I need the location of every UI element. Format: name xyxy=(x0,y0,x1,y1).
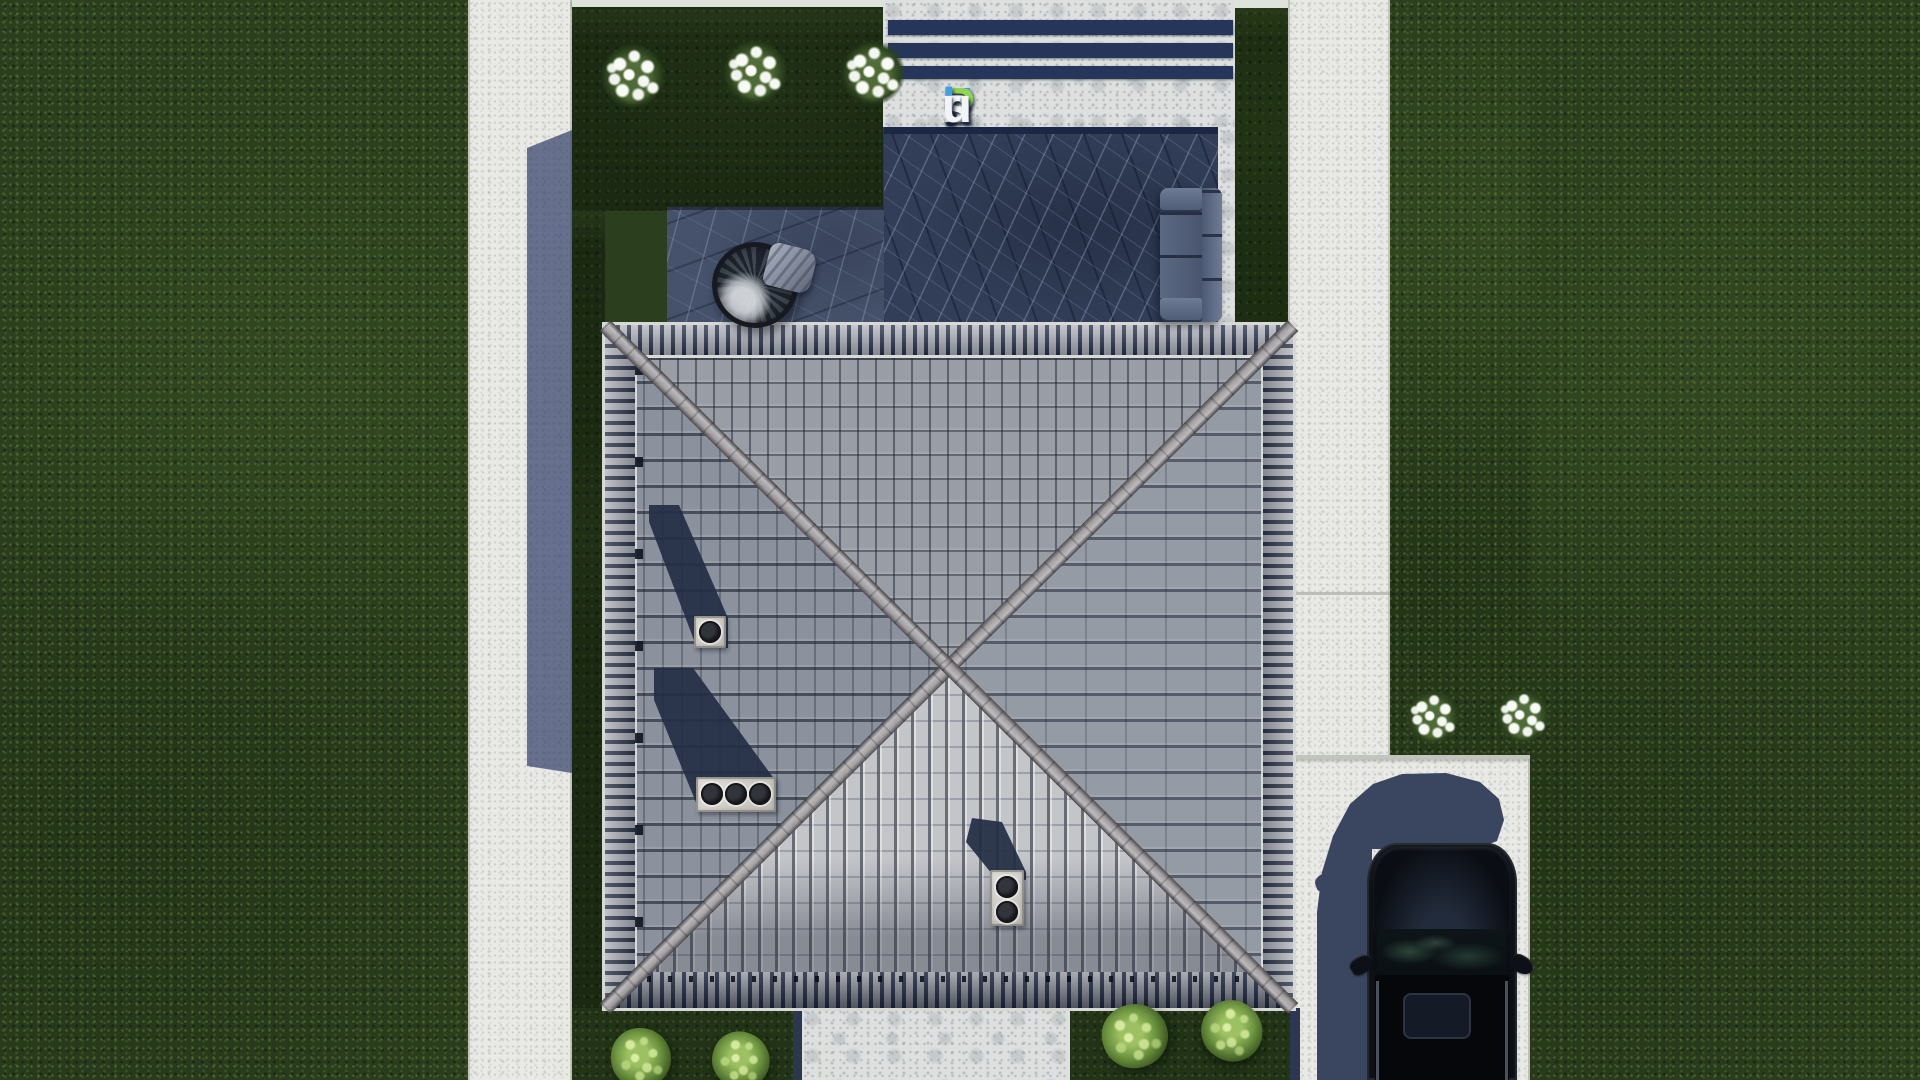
chimney-pot xyxy=(749,783,771,805)
sofa-armrest-bottom xyxy=(1160,298,1202,322)
car-hood xyxy=(1373,847,1511,935)
roof-eave-east xyxy=(1263,325,1293,1008)
chimney-pot xyxy=(699,621,721,643)
car-roof-rail-left xyxy=(1376,981,1379,1080)
hedge-strip xyxy=(1235,8,1288,325)
chimney-3 xyxy=(990,870,1024,926)
sofa-armrest-top xyxy=(1160,188,1202,212)
car-roof-rail-right xyxy=(1505,981,1508,1080)
top-curb-strip-right xyxy=(1235,0,1288,8)
scene-canvas: FixPlans.ru xyxy=(0,0,1920,1080)
sofa xyxy=(1160,188,1222,322)
walkway-shadow-left xyxy=(793,1008,802,1080)
terrace-edge-line xyxy=(667,207,884,210)
chimney-pot xyxy=(701,783,723,805)
top-curb-strip xyxy=(572,0,883,7)
flower-bush xyxy=(840,40,906,106)
watermark-letter: u xyxy=(942,78,972,134)
car-sunroof xyxy=(1403,993,1471,1039)
deck-stripe xyxy=(888,43,1233,58)
chimney-pot xyxy=(725,783,747,805)
flower-bush xyxy=(1495,688,1551,744)
car-windshield xyxy=(1377,929,1507,979)
house-roof xyxy=(605,325,1293,1008)
deck-stripe xyxy=(888,66,1233,79)
garden-walkway xyxy=(802,1008,1070,1080)
driveway-seam xyxy=(1288,755,1530,759)
lawn-left xyxy=(0,0,468,1080)
roof-fascia-shadow xyxy=(605,358,1293,360)
chimney-2 xyxy=(696,777,776,812)
chimney-pot xyxy=(996,901,1018,923)
lawn-right-notch xyxy=(1380,0,1530,757)
lawn-top-shaded xyxy=(572,6,883,211)
pool-edge-line xyxy=(884,127,1218,134)
snow-guard-hooks xyxy=(635,365,643,968)
roof-eave-north xyxy=(605,325,1293,355)
car xyxy=(1367,843,1517,1080)
roof-fascia-line xyxy=(1261,325,1263,1008)
chimney-1 xyxy=(694,616,726,648)
flower-bush xyxy=(600,43,666,109)
sofa-seats xyxy=(1160,212,1202,298)
sofa-back xyxy=(1200,188,1222,322)
house-shadow-on-path xyxy=(527,128,572,776)
flower-bush xyxy=(722,39,788,105)
walkway-shadow-right xyxy=(1290,1008,1300,1080)
roof-eave-west xyxy=(605,325,635,1008)
chimney-pot xyxy=(996,876,1018,898)
deck-stripe xyxy=(888,20,1233,35)
sidewalk-seam xyxy=(1288,592,1390,595)
gutter-dots xyxy=(605,976,1293,982)
flower-bush xyxy=(1405,689,1461,745)
